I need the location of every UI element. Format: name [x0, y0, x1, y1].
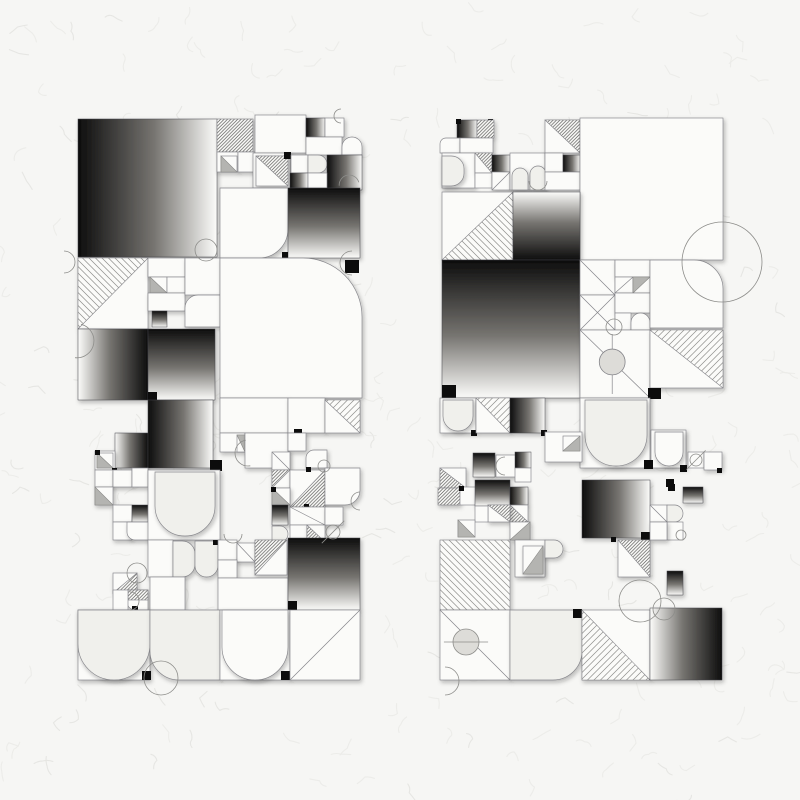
- art-tile-tg-bl: [221, 156, 237, 172]
- art-tile-w: [218, 560, 237, 578]
- art-tile-gv: [667, 571, 683, 595]
- art-tile-w: [113, 470, 132, 487]
- art-tile-k: [442, 385, 456, 398]
- art-tile-arL: [545, 540, 563, 558]
- art-tile-gh: [515, 452, 531, 468]
- art-tile-gh: [510, 487, 528, 505]
- decor-a: [64, 251, 75, 273]
- art-tile-tg-br: [523, 546, 543, 574]
- art-tile-q-tl: [306, 450, 327, 468]
- art-tile-tg-br: [510, 522, 530, 540]
- art-tile-atL: [512, 168, 528, 190]
- art-tile-h: [477, 120, 494, 138]
- art-tile-d2: [290, 610, 360, 680]
- art-tile-gh: [148, 400, 213, 468]
- art-tile-w: [515, 468, 531, 482]
- art-tile-w: [150, 577, 185, 610]
- art-tile-gh: [582, 480, 650, 538]
- art-tile-ths-tr: [325, 400, 360, 433]
- art-tile-w: [667, 522, 683, 540]
- art-tile-abL: [443, 400, 473, 431]
- art-tile-w: [148, 293, 185, 311]
- art-tile-ghr: [650, 608, 722, 680]
- art-tile-w: [650, 522, 667, 540]
- art-tile-q-tr: [650, 260, 723, 328]
- art-tile-q-tl: [185, 295, 220, 327]
- art-tile-x: [580, 295, 615, 330]
- art-tile-gv: [473, 453, 495, 477]
- art-tile-w: [460, 138, 493, 153]
- art-tile-gv: [152, 311, 167, 327]
- art-tile-gv: [132, 505, 148, 522]
- art-tile-ab: [655, 432, 683, 466]
- art-tile-k: [345, 260, 359, 273]
- art-tile-d1: [237, 543, 255, 562]
- art-tile-w: [308, 173, 327, 188]
- art-tile-w: [167, 277, 185, 293]
- art-tile-ths-br: [442, 192, 513, 260]
- art-tile-d1: [272, 452, 290, 470]
- art-tile-tg-br: [563, 436, 580, 451]
- art-tile-ths-tr: [650, 330, 723, 388]
- art-tile-k: [666, 479, 674, 487]
- art-tile-w: [288, 433, 306, 451]
- art-tile-arL: [308, 155, 327, 173]
- art-tile-abL: [155, 472, 215, 536]
- art-tile-w: [545, 172, 580, 190]
- art-tile-w: [113, 590, 128, 610]
- generative-art-canvas: [0, 0, 800, 800]
- art-tile-k: [213, 540, 218, 545]
- art-tile-k: [306, 467, 311, 472]
- art-tile-h: [217, 119, 253, 152]
- art-tile-w: [615, 293, 650, 313]
- art-tile-w: [325, 118, 344, 137]
- art-tile-k: [648, 388, 661, 399]
- art-tile-d1: [650, 505, 667, 522]
- art-tile-k: [271, 487, 276, 492]
- art-tile-w: [615, 260, 650, 277]
- art-tile-k: [641, 532, 650, 541]
- art-tile-ths-tl: [78, 258, 148, 329]
- art-tile-gv: [475, 480, 510, 506]
- art-tile-k: [573, 609, 582, 618]
- art-tile-tg-bl: [95, 487, 113, 505]
- art-tile-w: [218, 578, 288, 610]
- art-tile-tg-bl: [97, 453, 113, 468]
- art-tile-q-bl: [127, 522, 150, 540]
- art-tile-abL: [585, 400, 647, 466]
- art-tile-d1: [290, 507, 325, 525]
- art-tile-w: [185, 258, 220, 295]
- art-tile-th-tl: [272, 470, 290, 488]
- art-tile-k: [210, 460, 222, 471]
- art-tile-gh: [510, 398, 545, 433]
- art-tile-q-br: [220, 188, 288, 258]
- art-tile-qL-bl: [150, 610, 220, 680]
- art-tile-th-tr: [256, 156, 288, 186]
- art-tile-w: [475, 173, 492, 188]
- art-tile-ths-tr: [476, 398, 510, 433]
- art-tile-abL: [78, 610, 150, 680]
- art-tile-th-tr: [475, 153, 492, 173]
- art-tile-w: [496, 455, 516, 477]
- art-tile-arL: [272, 526, 288, 542]
- art-tile-tg-bl: [150, 277, 167, 293]
- art-tile-w: [255, 115, 306, 153]
- art-panel-right: [438, 118, 762, 695]
- art-tile-th-br: [290, 470, 325, 507]
- art-tile-ab: [222, 610, 288, 680]
- art-tile-w: [148, 540, 173, 577]
- art-tile-k: [459, 486, 464, 491]
- art-tile-gv: [288, 188, 360, 258]
- art-tile-atL: [530, 166, 546, 190]
- art-tile-gh: [327, 155, 362, 190]
- art-tile-arL: [442, 156, 464, 186]
- art-tile-k: [644, 460, 653, 469]
- art-tile-w: [325, 507, 343, 525]
- art-tile-th-tr: [488, 505, 510, 522]
- art-tile-h: [438, 488, 460, 505]
- art-tile-q-tr: [220, 258, 362, 398]
- art-tile-w: [113, 505, 132, 522]
- art-tile-tgt: [580, 330, 650, 398]
- art-tile-k: [717, 468, 722, 473]
- art-tile-w: [704, 452, 722, 470]
- art-tile-k: [142, 671, 151, 680]
- art-tile-d2: [492, 172, 510, 190]
- art-tile-th-tr: [618, 540, 650, 577]
- art-tile-th-tr: [545, 120, 580, 153]
- art-tile-gv: [272, 505, 288, 525]
- art-tile-tg-tr: [237, 435, 245, 452]
- art-tile-ths-bl: [582, 610, 650, 680]
- art-tile-w: [475, 506, 488, 522]
- art-tile-k: [282, 252, 288, 258]
- art-tile-th-tl: [255, 540, 287, 575]
- art-tile-at: [342, 137, 362, 155]
- art-tile-k: [680, 465, 687, 472]
- art-tile-qL-br: [510, 610, 582, 680]
- art-tile-gh: [306, 118, 325, 137]
- art-tile-k: [148, 392, 157, 400]
- art-tile-arL: [667, 505, 683, 522]
- art-tile-at: [631, 313, 650, 330]
- art-tile-k: [611, 537, 616, 542]
- art-tile-k: [456, 119, 461, 124]
- art-tile-gh: [78, 119, 217, 257]
- art-tile-abL: [195, 541, 218, 577]
- art-tile-hs: [440, 540, 510, 610]
- art-tile-w: [615, 313, 631, 330]
- art-tile-w: [220, 398, 288, 433]
- art-tile-w: [132, 468, 148, 487]
- art-tile-d2: [615, 277, 633, 293]
- art-tile-tg-bl: [458, 520, 475, 537]
- art-tile-w: [291, 155, 308, 173]
- art-tile-gv: [148, 329, 215, 400]
- art-tile-arL: [173, 541, 195, 577]
- art-tile-tg-tl: [633, 277, 650, 293]
- art-tile-gh: [563, 155, 580, 172]
- art-tile-th-bl: [510, 505, 528, 522]
- art-tile-k: [281, 671, 290, 680]
- artwork-stage: [0, 0, 800, 800]
- art-tile-d1: [580, 260, 615, 295]
- art-tile-ghr: [115, 433, 148, 468]
- art-tile-w: [95, 470, 113, 487]
- art-tile-q-tl: [440, 138, 460, 153]
- art-tile-w: [545, 153, 563, 172]
- art-tile-th-bl: [440, 468, 466, 488]
- art-tile-w: [238, 152, 255, 172]
- art-tile-k: [95, 450, 100, 455]
- art-tile-ghr: [78, 329, 148, 400]
- art-tile-w: [148, 258, 185, 277]
- art-tile-w: [580, 118, 723, 260]
- art-tile-k: [288, 601, 297, 610]
- art-tile-k: [284, 152, 291, 159]
- art-tile-q-br: [325, 468, 360, 505]
- art-tile-gv: [683, 487, 703, 503]
- art-tile-w: [288, 398, 325, 433]
- art-tile-gh: [492, 155, 510, 172]
- art-tile-gv: [442, 260, 580, 398]
- art-tile-gh: [290, 173, 308, 188]
- art-tile-gvr: [513, 192, 580, 260]
- art-tile-h: [128, 590, 148, 600]
- art-tile-w: [306, 137, 342, 155]
- art-tile-gv: [288, 538, 360, 610]
